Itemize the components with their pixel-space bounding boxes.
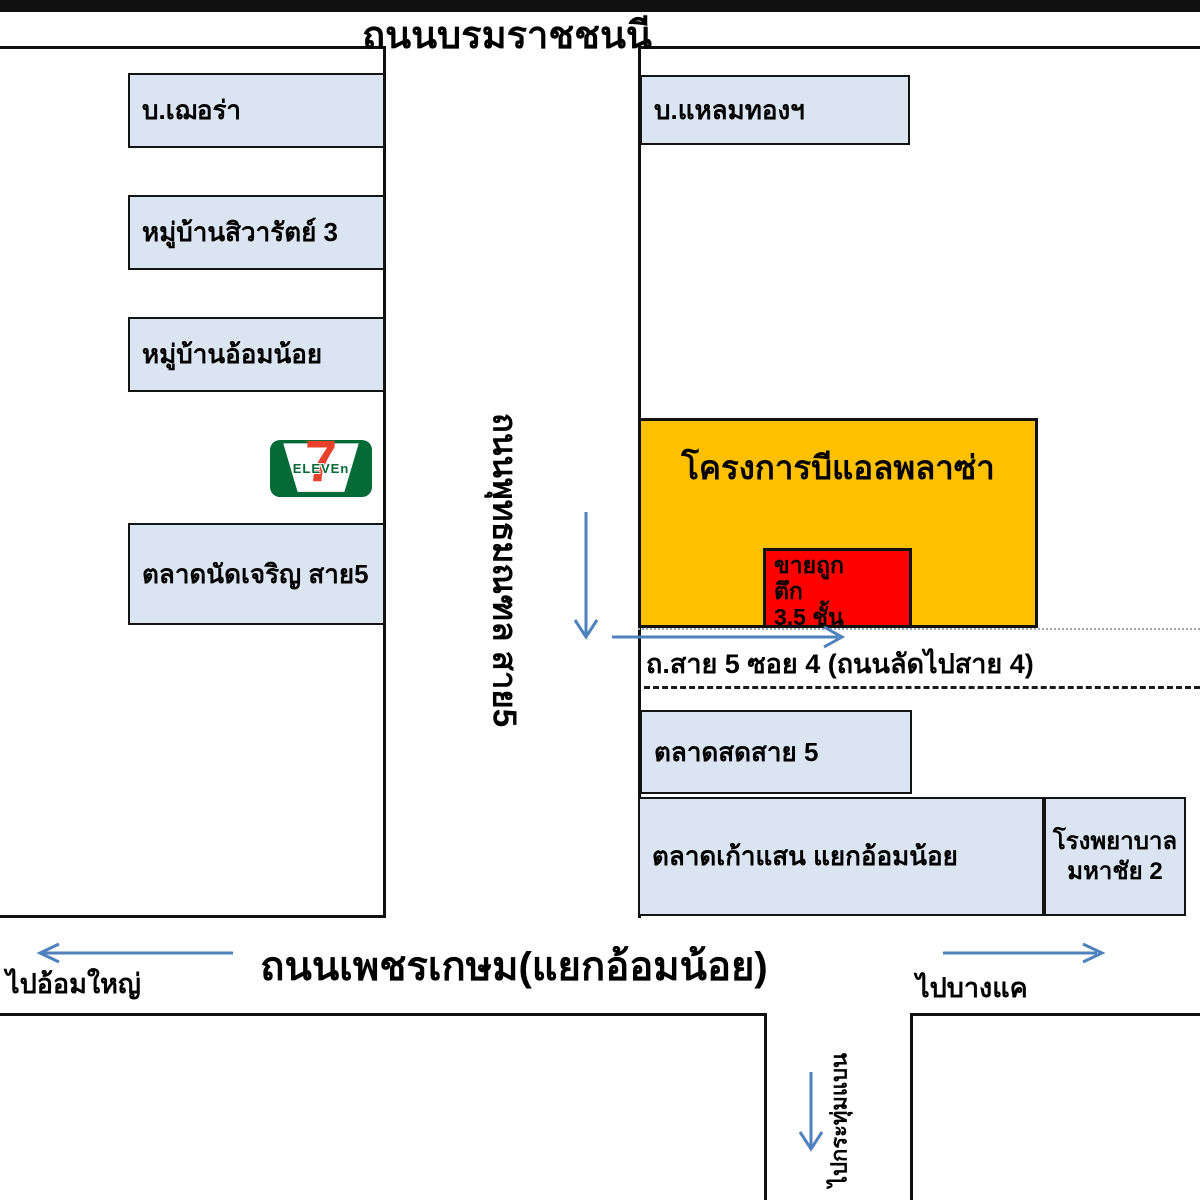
landmark-kao-saen-market: ตลาดเก้าแสน แยกอ้อมน้อย (638, 797, 1044, 916)
landmark-om-noi-village: หมู่บ้านอ้อมน้อย (128, 317, 385, 392)
seven-eleven-logo-icon: 7 ELEVEn (270, 440, 372, 497)
arrow-down-icon (795, 1070, 827, 1164)
landmark-mahachai-hospital: โรงพยาบาล มหาชัย 2 (1044, 797, 1186, 916)
right-block-top-border (638, 46, 1200, 49)
left-block-bottom-border (0, 915, 386, 918)
arrow-right-icon (612, 624, 850, 650)
arrow-down-icon (570, 510, 602, 652)
left-block-top-border (0, 46, 386, 49)
landmark-fresh-market: ตลาดสดสาย 5 (640, 710, 912, 794)
south-road-right-border (910, 1013, 913, 1200)
landmark-siwarat-village: หมู่บ้านสิวารัตย์ 3 (128, 195, 385, 270)
sale-sign-line2: ตึก (774, 579, 909, 605)
arrow-left-icon (35, 941, 233, 965)
arrow-right-icon (943, 941, 1107, 965)
bl-plaza-label: โครงการบีแอลพลาซ่า (641, 441, 1035, 494)
hospital-label-line1: โรงพยาบาล (1053, 827, 1177, 857)
soi-bottom-dashed-line (644, 686, 1200, 689)
sai5-road-label: ถนนพุทธมณฑล สาย5 (479, 413, 532, 727)
bottom-right-block-top-border (910, 1013, 1200, 1016)
south-road-left-border (764, 1013, 767, 1200)
hospital-label-line2: มหาชัย 2 (1067, 857, 1162, 887)
landmark-chera: บ.เฌอร่า (128, 73, 385, 148)
sai5-road-left-border (383, 46, 386, 918)
bottom-left-block-top-border (0, 1013, 767, 1016)
location-map: ถนนบรมราชชนนี ถนนเพชรเกษม(แยกอ้อมน้อย) ถ… (0, 0, 1200, 1200)
landmark-charoen-market: ตลาดนัดเจริญ สาย5 (128, 523, 385, 625)
sale-sign-line1: ขายถูก (774, 553, 909, 579)
top-road-label: ถนนบรมราชชนนี (362, 4, 652, 65)
bang-khae-direction-label: ไปบางแค (916, 966, 1028, 1009)
seven-eleven-wordmark: ELEVEn (270, 461, 372, 476)
landmark-laem-thong: บ.แหลมทองฯ (640, 75, 910, 145)
om-yai-direction-label: ไปอ้อมใหญ่ (6, 962, 141, 1005)
phetkasem-road-label: ถนนเพชรเกษม(แยกอ้อมน้อย) (260, 934, 768, 998)
sale-building-sign: ขายถูก ตึก 3.5 ชั้น (763, 548, 912, 628)
